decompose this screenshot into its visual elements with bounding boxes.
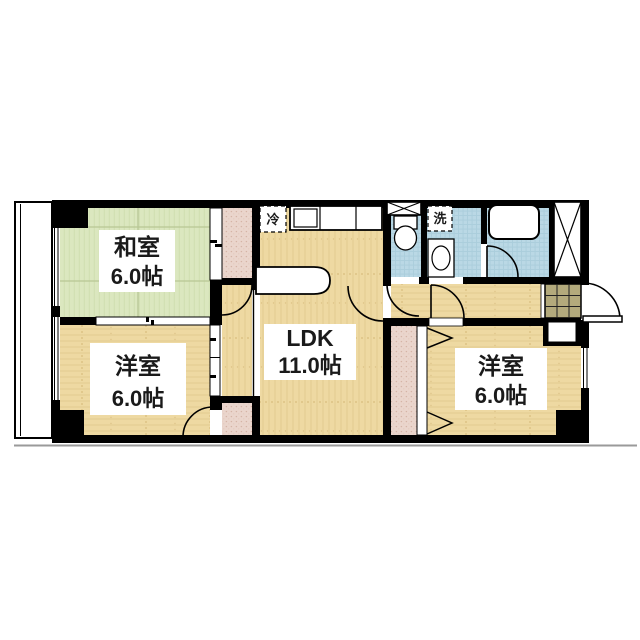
washitsu-size: 6.0帖: [111, 264, 164, 289]
closet-oshiire-top: [222, 208, 252, 280]
youshitsu-right-size: 6.0帖: [475, 383, 528, 408]
wall-left-seg1: [52, 200, 60, 228]
wall-youshitsu-left-door-jamb: [210, 396, 222, 410]
ldk-size: 11.0帖: [278, 353, 342, 378]
washitsu-name: 和室: [114, 234, 160, 260]
wall-left-seg2: [52, 306, 60, 317]
youshitsu-right-name: 洋室: [478, 353, 524, 379]
room-ldk-floor: [260, 208, 383, 435]
wall-right-seg2: [581, 320, 589, 348]
toilet-fixture: [394, 216, 417, 250]
youshitsu-left-name: 洋室: [115, 353, 161, 379]
wall-left-seg3: [52, 400, 60, 443]
washer-label: 洗: [433, 211, 446, 226]
hallway-floor: [391, 284, 541, 318]
wall-hall-bedroom-a: [391, 318, 429, 326]
shoe-cabinet: [548, 322, 576, 342]
refrigerator-label: 冷: [266, 212, 279, 227]
youshitsu-left-size: 6.0帖: [112, 386, 165, 411]
corner-block-youshitsu-left: [60, 410, 84, 435]
closet-ldk-bottom: [222, 403, 252, 435]
wall-toilet-washroom: [421, 202, 427, 277]
kitchen-bar-counter: [256, 267, 330, 294]
wall-ldk-hall-lower: [383, 318, 391, 435]
doorway-youshitsu-right: [429, 318, 463, 326]
oshiire-fusuma-doors: [210, 208, 222, 280]
meter-box-shaft: [554, 202, 581, 277]
wall-bottom: [52, 435, 589, 443]
wall-wet-bottom-b: [419, 277, 429, 284]
wall-L-horizontal: [222, 396, 260, 403]
front-door: [583, 283, 622, 322]
label-washitsu: 和室 6.0帖: [99, 230, 175, 292]
front-door-arc: [583, 283, 620, 320]
wall-right-seg3: [581, 388, 589, 443]
label-youshitsu-right: 洋室 6.0帖: [455, 348, 547, 410]
wall-L-vertical: [252, 403, 260, 435]
ldk-name: LDK: [286, 325, 334, 351]
floor-plan-page: 冷 洗 和室 6.0帖 洋室 6.0帖 LDK 11.0帖: [0, 0, 640, 640]
wall-junction: [210, 317, 222, 325]
wall-hall-bedroom-b: [463, 318, 545, 326]
duct-box: [387, 202, 421, 215]
corner-block-washitsu: [60, 208, 88, 228]
wall-wet-bottom-c: [463, 277, 554, 284]
label-youshitsu-left: 洋室 6.0帖: [90, 343, 186, 415]
refrigerator-space: 冷: [260, 206, 286, 232]
wall-under-oshiire: [222, 278, 252, 285]
washbasin: [428, 239, 454, 277]
genkan-tile: [541, 284, 581, 318]
balcony: [15, 202, 52, 438]
corner-block-youshitsu-right: [556, 410, 581, 435]
washer-space: 洗: [428, 206, 452, 231]
label-ldk: LDK 11.0帖: [264, 324, 356, 380]
washitsu-youshitsu-fusuma: [96, 317, 210, 325]
floor-plan-svg: 冷 洗 和室 6.0帖 洋室 6.0帖 LDK 11.0帖: [0, 0, 640, 640]
wall-washroom-bath: [481, 202, 487, 244]
bathtub: [489, 205, 539, 239]
wall-right-seg1: [581, 200, 589, 285]
wall-washitsu-youshitsu: [60, 317, 96, 325]
wall-washitsu-right: [210, 280, 222, 317]
ground-line: [14, 445, 637, 447]
wall-wet-bottom-a: [383, 277, 389, 284]
closet-youshitsu-right: [391, 326, 417, 435]
front-door-leaf: [583, 316, 622, 322]
kitchen-sink: [294, 209, 317, 227]
youshitsu-left-closet-doors: [210, 325, 220, 396]
